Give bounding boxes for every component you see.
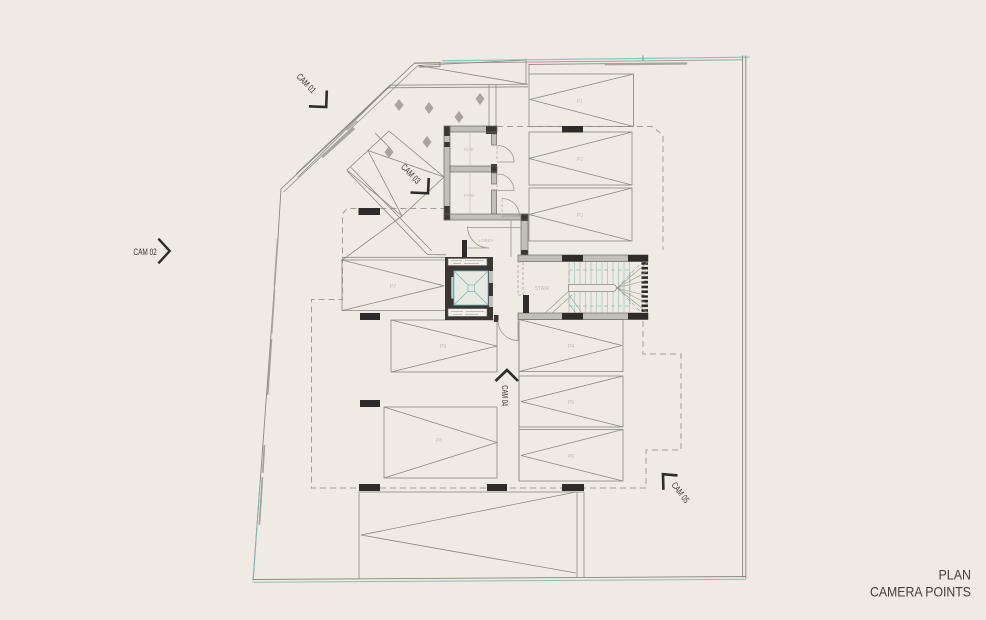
svg-text:KWB: KWB [464, 193, 474, 198]
svg-text:P8: P8 [436, 438, 442, 444]
svg-text:P4: P4 [568, 344, 574, 350]
svg-text:PLAN: PLAN [939, 567, 972, 583]
svg-text:CAM 04: CAM 04 [500, 385, 508, 406]
svg-text:P3: P3 [577, 213, 583, 219]
svg-text:P8: P8 [440, 344, 446, 350]
svg-text:P5: P5 [568, 400, 574, 406]
svg-text:KHB: KHB [464, 147, 473, 152]
svg-text:CAMERA POINTS: CAMERA POINTS [870, 584, 971, 600]
svg-text:P2: P2 [577, 157, 583, 163]
svg-text:CAM 02: CAM 02 [133, 247, 156, 257]
svg-text:STAIR: STAIR [535, 286, 550, 292]
svg-text:P6: P6 [568, 454, 574, 460]
svg-text:LOBBY: LOBBY [478, 238, 493, 243]
svg-text:P1: P1 [577, 99, 583, 105]
svg-text:P7: P7 [390, 284, 396, 290]
